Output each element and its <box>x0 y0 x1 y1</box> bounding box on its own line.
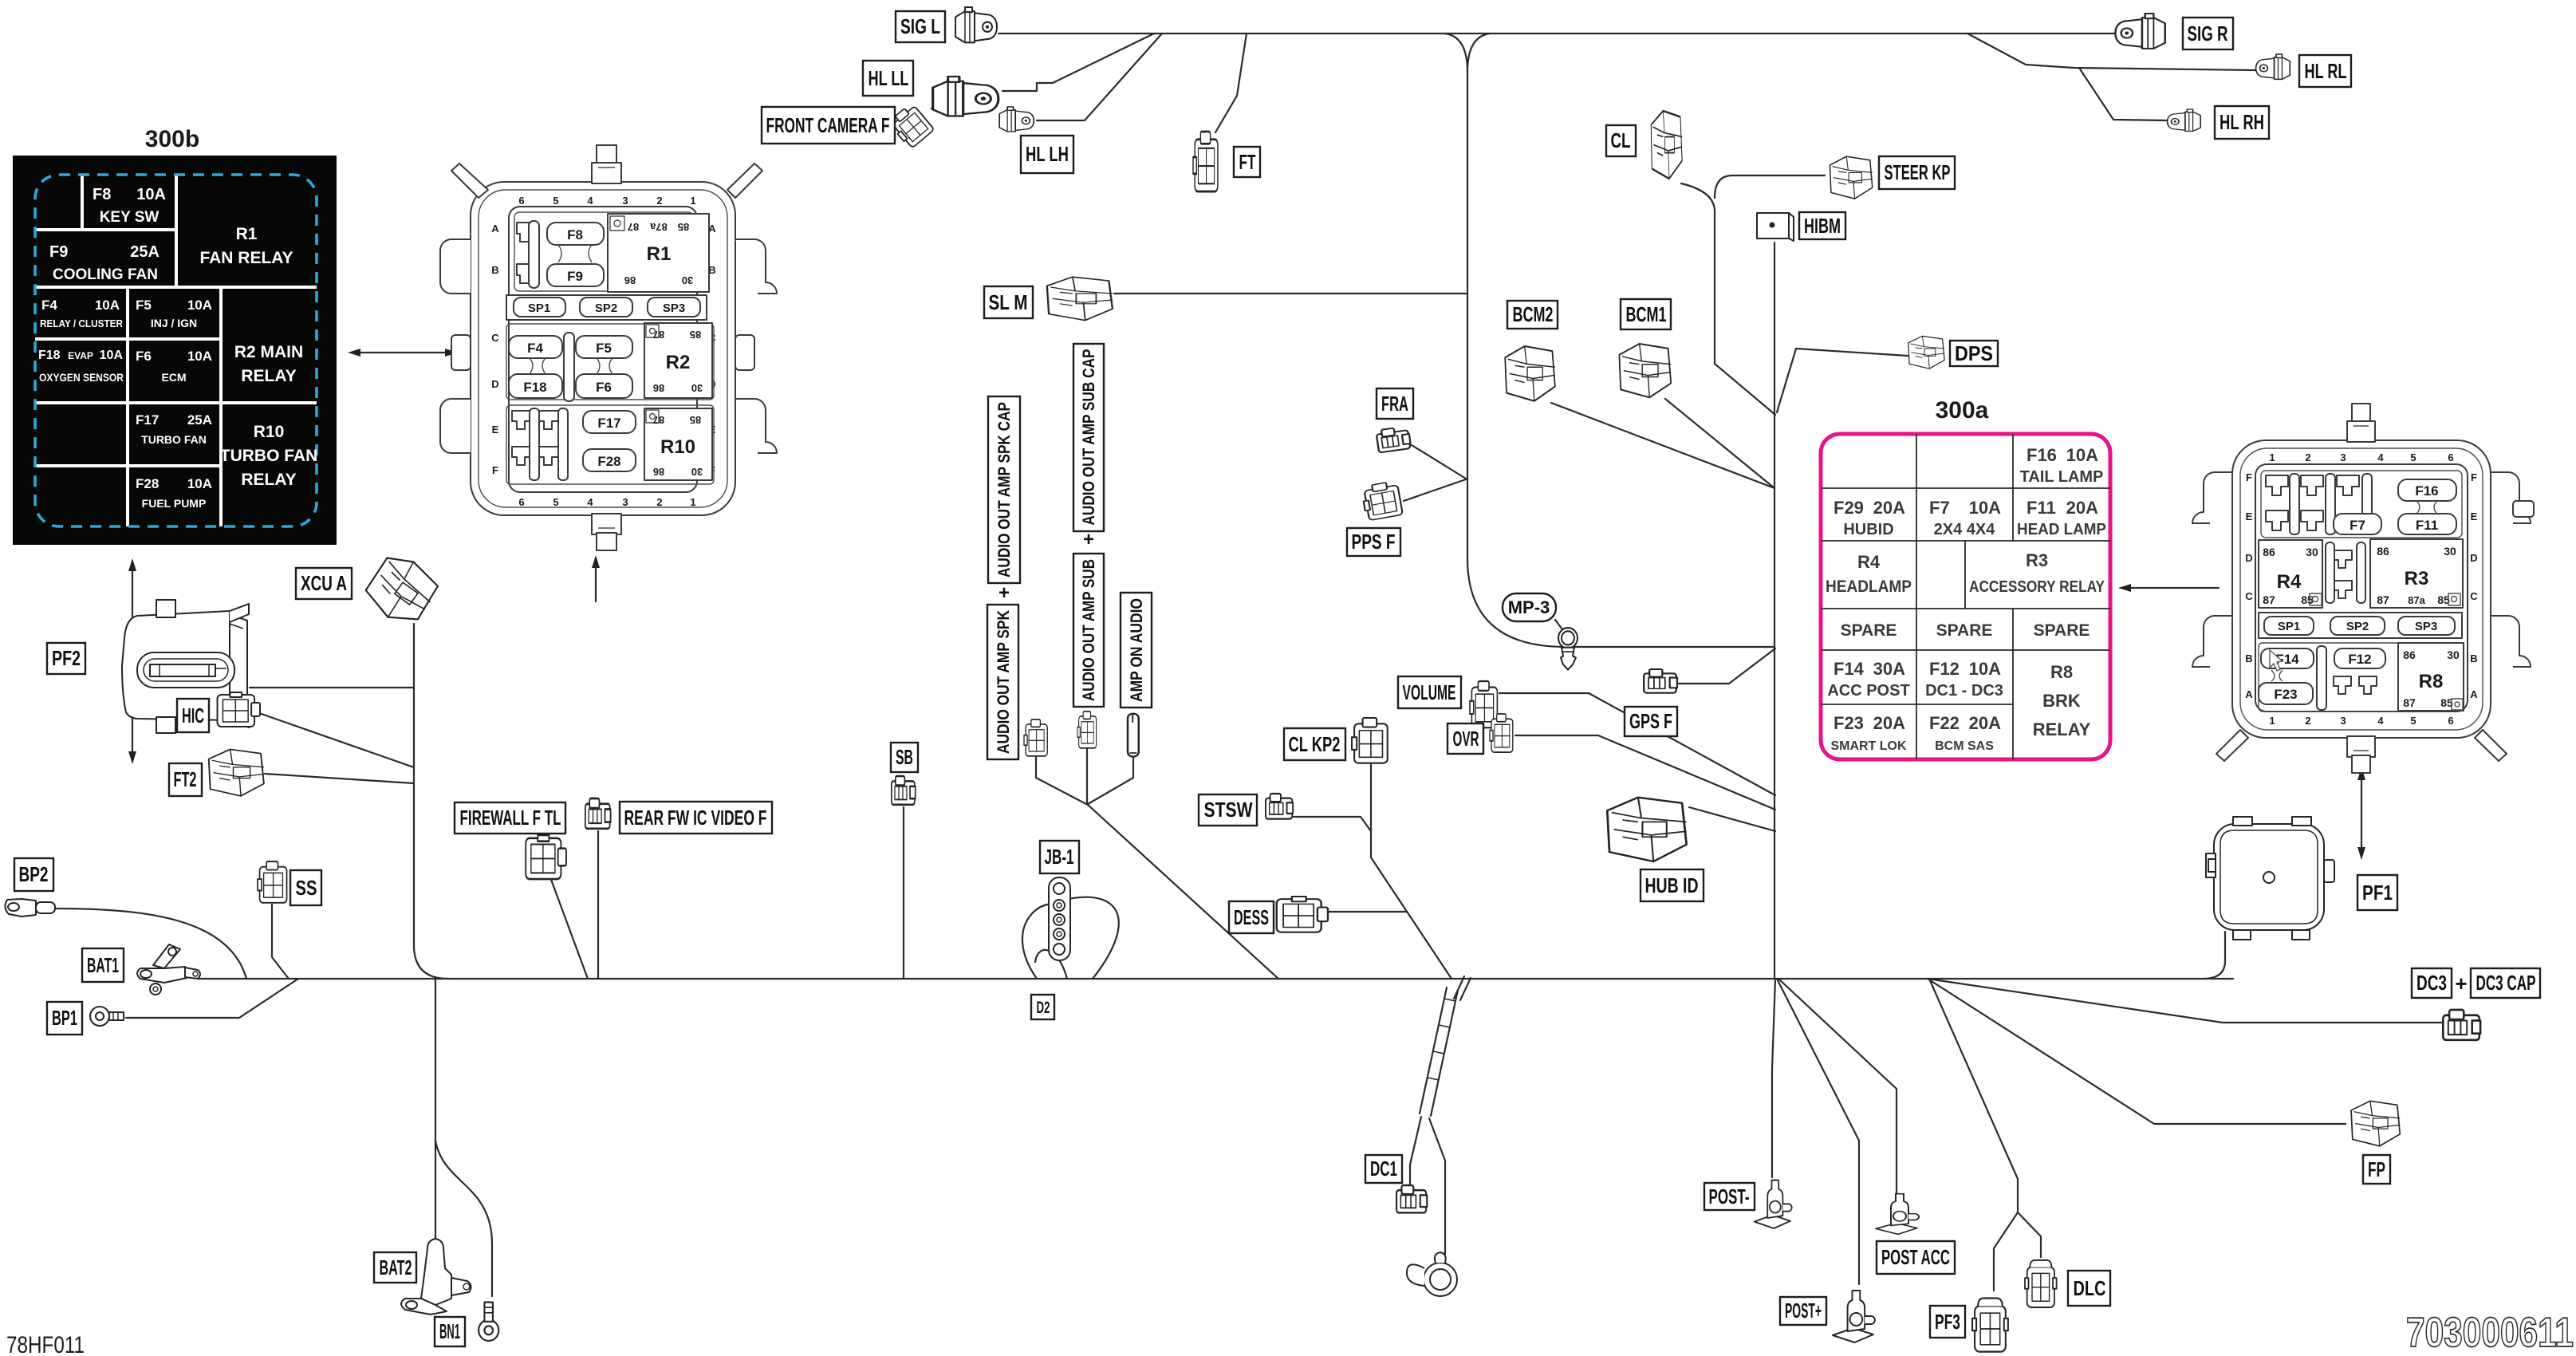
svg-text:ACCESSORY RELAY: ACCESSORY RELAY <box>1969 578 2105 596</box>
svg-text:F22: F22 <box>1929 713 1960 733</box>
svg-text:BAT1: BAT1 <box>87 953 119 977</box>
svg-text:F5: F5 <box>596 341 612 356</box>
svg-text:3: 3 <box>2340 451 2346 463</box>
svg-text:87: 87 <box>2403 696 2416 709</box>
svg-text:F9: F9 <box>567 269 583 284</box>
svg-text:ACC POST: ACC POST <box>1827 682 1909 700</box>
svg-text:30: 30 <box>2306 546 2318 558</box>
svg-text:R8: R8 <box>2419 671 2444 692</box>
svg-text:F6: F6 <box>596 380 612 395</box>
svg-text:1: 1 <box>2269 451 2275 463</box>
svg-text:AUDIO OUT AMP SUB CAP: AUDIO OUT AMP SUB CAP <box>1080 349 1098 526</box>
svg-text:COOLING FAN: COOLING FAN <box>53 266 158 283</box>
svg-text:FRONT CAMERA F: FRONT CAMERA F <box>766 113 890 137</box>
svg-text:87: 87 <box>2377 593 2389 606</box>
svg-text:F17: F17 <box>597 416 620 431</box>
svg-text:BRK: BRK <box>2042 691 2081 711</box>
svg-text:SL M: SL M <box>989 290 1028 314</box>
svg-text:4: 4 <box>2377 715 2384 727</box>
svg-text:B: B <box>2470 652 2477 664</box>
svg-text:3: 3 <box>622 496 628 508</box>
svg-text:F9: F9 <box>49 243 68 261</box>
svg-text:FP: FP <box>2368 1157 2385 1181</box>
svg-text:87a: 87a <box>2408 594 2425 606</box>
svg-text:F18: F18 <box>523 380 546 395</box>
svg-text:BCM SAS: BCM SAS <box>1935 739 1994 753</box>
svg-text:F12: F12 <box>1929 659 1960 679</box>
svg-text:SP3: SP3 <box>2415 620 2437 633</box>
svg-text:85: 85 <box>690 329 701 341</box>
svg-text:F: F <box>2471 471 2477 483</box>
svg-text:SP1: SP1 <box>2278 620 2300 633</box>
svg-text:POST-: POST- <box>1709 1185 1750 1208</box>
svg-text:F17: F17 <box>136 412 159 428</box>
svg-text:PF1: PF1 <box>2362 881 2393 905</box>
svg-text:SIG R: SIG R <box>2188 22 2228 45</box>
svg-text:87: 87 <box>653 414 664 426</box>
svg-text:DLC: DLC <box>2074 1276 2106 1300</box>
svg-text:BP2: BP2 <box>19 862 49 886</box>
svg-text:10A: 10A <box>100 349 124 362</box>
svg-text:OVR: OVR <box>1453 727 1479 751</box>
svg-text:+: + <box>1083 529 1094 550</box>
svg-text:FUEL PUMP: FUEL PUMP <box>142 497 207 510</box>
svg-text:XCU A: XCU A <box>301 571 347 595</box>
svg-text:PF2: PF2 <box>52 646 81 670</box>
svg-text:30A: 30A <box>1873 659 1905 679</box>
svg-text:F: F <box>2246 471 2252 483</box>
svg-text:4: 4 <box>2377 451 2384 463</box>
svg-text:AUDIO OUT AMP SPK: AUDIO OUT AMP SPK <box>995 610 1013 754</box>
svg-text:R3: R3 <box>2405 568 2429 589</box>
svg-text:SP3: SP3 <box>663 302 685 315</box>
svg-text:HEAD LAMP: HEAD LAMP <box>2017 521 2106 538</box>
svg-text:6: 6 <box>2448 715 2453 727</box>
svg-text:D2: D2 <box>1037 999 1050 1017</box>
svg-text:R3: R3 <box>2026 550 2048 570</box>
svg-text:F6: F6 <box>136 349 152 364</box>
svg-text:SS: SS <box>296 876 317 900</box>
svg-text:AUDIO OUT AMP SPK CAP: AUDIO OUT AMP SPK CAP <box>995 402 1014 577</box>
svg-text:F23: F23 <box>2274 687 2297 702</box>
svg-text:F14: F14 <box>1834 659 1865 679</box>
svg-text:STSW: STSW <box>1204 798 1253 822</box>
svg-text:F16: F16 <box>2415 483 2438 499</box>
svg-text:HL LH: HL LH <box>1026 142 1069 166</box>
svg-text:F11: F11 <box>2027 498 2056 518</box>
svg-text:2: 2 <box>656 496 662 508</box>
svg-text:A: A <box>491 223 499 235</box>
svg-text:AMP ON AUDIO: AMP ON AUDIO <box>1128 598 1146 702</box>
svg-text:OXYGEN SENSOR: OXYGEN SENSOR <box>39 371 124 384</box>
svg-text:CL KP2: CL KP2 <box>1289 732 1341 756</box>
svg-text:6: 6 <box>518 195 524 207</box>
svg-text:5: 5 <box>2410 451 2416 463</box>
svg-text:30: 30 <box>2444 545 2456 558</box>
svg-text:FT2: FT2 <box>174 767 197 791</box>
svg-text:RELAY: RELAY <box>2033 719 2091 739</box>
svg-text:SP2: SP2 <box>2346 620 2369 633</box>
svg-text:C: C <box>2245 590 2253 602</box>
svg-text:+: + <box>2455 972 2467 995</box>
svg-text:DC3 CAP: DC3 CAP <box>2476 971 2536 995</box>
svg-text:SP2: SP2 <box>595 302 617 315</box>
svg-text:5: 5 <box>553 496 558 508</box>
svg-text:4: 4 <box>587 195 593 207</box>
svg-text:R10: R10 <box>660 436 695 458</box>
svg-text:A: A <box>2245 688 2253 700</box>
svg-text:F7: F7 <box>1929 498 1950 518</box>
svg-text:POST ACC: POST ACC <box>1881 1245 1950 1269</box>
svg-text:30: 30 <box>691 382 703 394</box>
svg-text:HIBM: HIBM <box>1804 214 1841 238</box>
svg-text:DC3: DC3 <box>2416 971 2447 995</box>
svg-text:F11: F11 <box>2416 518 2438 533</box>
svg-text:HL RL: HL RL <box>2305 59 2347 83</box>
svg-text:6: 6 <box>518 496 524 508</box>
svg-text:TAIL LAMP: TAIL LAMP <box>2020 468 2104 486</box>
svg-text:20A: 20A <box>2066 498 2098 518</box>
svg-text:30: 30 <box>682 274 693 286</box>
svg-text:30: 30 <box>2447 648 2460 661</box>
svg-text:F29: F29 <box>1834 498 1864 518</box>
svg-text:1: 1 <box>2269 715 2275 727</box>
svg-text:SB: SB <box>896 745 913 769</box>
svg-text:86: 86 <box>2263 546 2275 558</box>
svg-text:REAR FW IC VIDEO F: REAR FW IC VIDEO F <box>624 806 767 830</box>
svg-text:R10: R10 <box>254 423 285 441</box>
svg-text:HUB ID: HUB ID <box>1645 873 1699 897</box>
svg-text:TURBO FAN: TURBO FAN <box>141 433 207 446</box>
svg-text:10A: 10A <box>1969 659 2001 679</box>
svg-text:20A: 20A <box>1873 713 1905 733</box>
svg-text:2: 2 <box>656 195 662 207</box>
svg-text:87: 87 <box>2263 593 2275 606</box>
svg-text:87a: 87a <box>649 221 667 233</box>
svg-text:+: + <box>998 582 1010 604</box>
svg-text:FT: FT <box>1239 150 1256 174</box>
svg-text:R1: R1 <box>647 243 672 265</box>
svg-text:86: 86 <box>653 382 664 394</box>
svg-text:2X4 4X4: 2X4 4X4 <box>1934 521 1996 538</box>
svg-text:F4: F4 <box>527 341 543 356</box>
svg-text:D: D <box>2245 552 2252 564</box>
svg-text:SPARE: SPARE <box>1841 621 1897 640</box>
svg-text:F7: F7 <box>2350 518 2365 533</box>
svg-text:F8: F8 <box>93 186 111 203</box>
svg-text:F: F <box>492 464 498 476</box>
svg-text:F5: F5 <box>136 298 152 313</box>
svg-text:SPARE: SPARE <box>1936 621 1993 640</box>
svg-text:4: 4 <box>587 496 593 508</box>
svg-text:ECM: ECM <box>161 371 186 384</box>
svg-text:6: 6 <box>2448 451 2453 463</box>
svg-text:FRA: FRA <box>1381 392 1408 416</box>
svg-text:85: 85 <box>678 221 689 233</box>
svg-text:1: 1 <box>690 195 695 207</box>
svg-text:STEER KP: STEER KP <box>1885 160 1951 184</box>
svg-text:KEY SW: KEY SW <box>100 209 160 226</box>
svg-text:10A: 10A <box>187 298 212 313</box>
svg-text:DESS: DESS <box>1234 905 1269 929</box>
svg-text:F12: F12 <box>2348 652 2371 667</box>
svg-text:300b: 300b <box>145 126 199 152</box>
svg-text:78HF011: 78HF011 <box>6 1332 85 1356</box>
svg-text:20A: 20A <box>1969 713 2001 733</box>
svg-text:86: 86 <box>2403 648 2416 661</box>
svg-text:PPS F: PPS F <box>1352 530 1396 554</box>
svg-text:E: E <box>492 424 499 436</box>
svg-text:RELAY / CLUSTER: RELAY / CLUSTER <box>40 317 124 329</box>
svg-text:25A: 25A <box>187 412 212 428</box>
svg-text:JB-1: JB-1 <box>1045 845 1074 869</box>
svg-text:CL: CL <box>1611 128 1631 152</box>
svg-text:F23: F23 <box>1834 713 1864 733</box>
svg-text:C: C <box>2470 590 2478 602</box>
svg-text:EVAP: EVAP <box>68 350 93 361</box>
svg-text:F28: F28 <box>136 476 159 491</box>
svg-text:HUBID: HUBID <box>1843 521 1893 538</box>
svg-text:GPS F: GPS F <box>1629 709 1672 733</box>
svg-text:FIREWALL F TL: FIREWALL F TL <box>460 806 561 830</box>
svg-text:2: 2 <box>2305 451 2310 463</box>
svg-text:25A: 25A <box>130 243 160 261</box>
svg-text:AUDIO OUT AMP SUB: AUDIO OUT AMP SUB <box>1080 559 1098 701</box>
svg-text:R2: R2 <box>666 352 691 373</box>
svg-text:SMART LOK: SMART LOK <box>1830 739 1907 753</box>
svg-text:3: 3 <box>2340 715 2346 727</box>
svg-text:85: 85 <box>690 414 701 426</box>
svg-text:HL RH: HL RH <box>2220 110 2264 134</box>
svg-text:FAN RELAY: FAN RELAY <box>199 249 293 267</box>
svg-text:DPS: DPS <box>1955 341 1993 365</box>
svg-text:B: B <box>2245 652 2252 664</box>
svg-text:F16: F16 <box>2027 445 2057 465</box>
svg-text:HIC: HIC <box>182 704 204 727</box>
svg-text:DC1: DC1 <box>1370 1157 1397 1181</box>
svg-text:5: 5 <box>553 195 558 207</box>
svg-text:BAT2: BAT2 <box>380 1255 412 1279</box>
svg-text:30: 30 <box>691 466 703 478</box>
svg-text:E: E <box>2246 510 2253 522</box>
svg-text:BP1: BP1 <box>52 1006 77 1030</box>
svg-text:5: 5 <box>2410 715 2416 727</box>
svg-text:RELAY: RELAY <box>241 471 296 489</box>
svg-text:10A: 10A <box>95 298 120 313</box>
svg-text:86: 86 <box>2377 545 2389 558</box>
svg-text:R4: R4 <box>1857 552 1881 572</box>
svg-text:DC1 - DC3: DC1 - DC3 <box>1925 682 2003 700</box>
svg-text:10A: 10A <box>136 186 166 203</box>
svg-text:SIG L: SIG L <box>900 14 940 38</box>
svg-text:86: 86 <box>624 274 636 286</box>
svg-text:C: C <box>491 332 499 344</box>
svg-text:E: E <box>2471 510 2478 522</box>
svg-text:SPARE: SPARE <box>2034 621 2090 640</box>
svg-text:HL LL: HL LL <box>869 66 909 90</box>
svg-text:PF3: PF3 <box>1935 1310 1960 1334</box>
svg-text:3: 3 <box>622 195 628 207</box>
svg-text:85: 85 <box>2301 593 2314 606</box>
svg-text:MP-3: MP-3 <box>1508 597 1550 617</box>
svg-text:POST+: POST+ <box>1785 1299 1822 1322</box>
svg-text:R1: R1 <box>236 225 258 243</box>
svg-text:D: D <box>491 378 498 390</box>
svg-text:INJ / IGN: INJ / IGN <box>151 317 197 329</box>
svg-text:2: 2 <box>2305 715 2310 727</box>
svg-text:R8: R8 <box>2050 662 2073 682</box>
svg-text:703000611: 703000611 <box>2406 1310 2574 1356</box>
svg-text:A: A <box>2470 688 2478 700</box>
svg-text:TURBO FAN: TURBO FAN <box>220 447 318 465</box>
svg-text:SP1: SP1 <box>528 302 550 315</box>
svg-text:BN1: BN1 <box>439 1319 460 1343</box>
svg-text:BCM2: BCM2 <box>1513 302 1554 326</box>
svg-text:10A: 10A <box>2066 445 2098 465</box>
svg-text:HEADLAMP: HEADLAMP <box>1826 577 1912 596</box>
svg-text:10A: 10A <box>187 349 212 364</box>
svg-text:F28: F28 <box>597 454 620 469</box>
svg-text:300a: 300a <box>1936 397 1989 424</box>
svg-text:10A: 10A <box>187 476 212 491</box>
svg-text:87: 87 <box>628 221 639 233</box>
svg-text:VOLUME: VOLUME <box>1403 680 1456 704</box>
svg-text:20A: 20A <box>1873 498 1905 518</box>
svg-text:R4: R4 <box>2277 571 2302 593</box>
svg-text:BCM1: BCM1 <box>1626 302 1667 326</box>
svg-text:D: D <box>2470 552 2477 564</box>
svg-text:R2 MAIN: R2 MAIN <box>234 343 303 361</box>
svg-text:B: B <box>491 264 498 276</box>
svg-text:F4: F4 <box>41 298 57 313</box>
svg-text:87: 87 <box>653 329 664 341</box>
svg-text:F8: F8 <box>567 227 583 242</box>
svg-text:F18: F18 <box>38 349 61 362</box>
svg-text:10A: 10A <box>1969 498 2001 518</box>
svg-text:RELAY: RELAY <box>241 367 296 385</box>
svg-text:86: 86 <box>653 466 664 478</box>
svg-text:1: 1 <box>690 496 695 508</box>
